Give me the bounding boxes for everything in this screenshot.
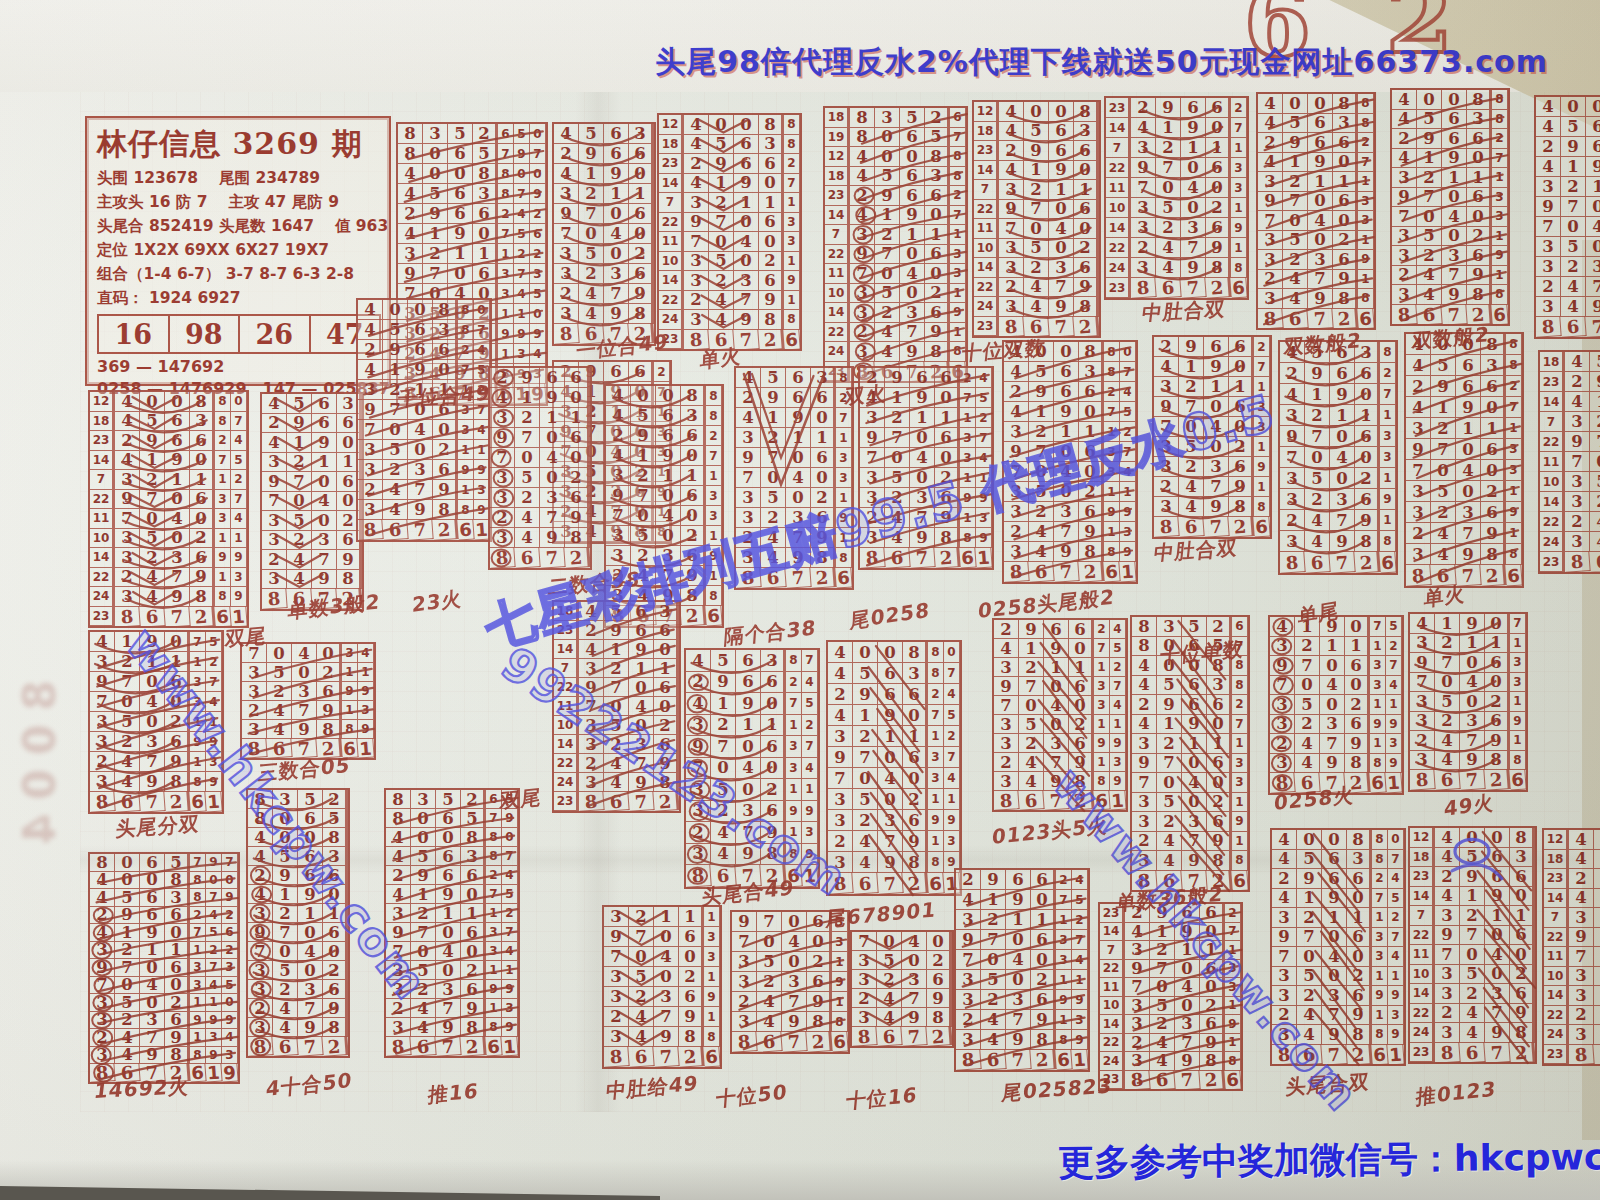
extra-cell: 7 [231,490,247,510]
extra-cell: 3 [215,490,231,510]
digit-cell: 0 [317,644,342,663]
digit-cell: 9 [448,224,473,244]
digit-cell: 4 [383,480,408,500]
digit-cell: 9 [515,368,540,388]
digit-cell: 2 [994,753,1019,772]
digit-cell: 6 [1229,457,1254,477]
extra-cell: 6 [927,872,944,894]
digit-cell: 3 [490,408,515,428]
number-grid: 4008804563872966244190753211129706377040… [356,298,492,542]
info-footer-1: 369 — 147692 [97,357,381,376]
grid-row: 14419075 [90,451,247,471]
digit-cell: 3 [262,570,287,590]
grid-caption: 双尾 [224,622,268,653]
digit-cell: 2 [1019,734,1044,753]
extra-cell: 9 [1120,542,1136,562]
number-grid: 4008456329664190321197067040350232362479… [1534,95,1600,339]
grid-row: 732111 [1106,138,1247,158]
grid-row: 3211122 [398,244,546,264]
digit-cell: 0 [786,448,811,468]
extra-cell: 9 [944,810,960,831]
extra-cell: 8 [1506,334,1522,355]
digit-cell: 4 [386,847,411,866]
extra-cell: 2 [1386,637,1402,657]
digit-cell: 2 [757,972,782,992]
digit-cell: 2 [1019,658,1044,677]
digit-cell: 3 [681,406,706,426]
digit-cell: 1 [910,408,935,428]
digit-cell: 5 [1305,468,1330,489]
digit-cell: 4 [1004,362,1029,382]
digit-cell: 5 [761,368,786,388]
digit-cell: 4 [358,320,383,340]
extra-cell: 7 [706,446,722,466]
digit-cell: 0 [900,245,925,265]
extra-cell: 1 [231,529,247,549]
digit-cell: 3 [684,310,709,330]
digit-cell: 7 [140,1029,165,1047]
digit-cell: 4 [1485,945,1510,965]
digit-cell: 4 [1392,90,1417,110]
digit-cell: 0 [925,206,950,226]
grid-row: 29662 [736,388,852,408]
digit-cell: 9 [656,446,681,466]
grid-caption: 49火 [1444,789,1495,823]
extra-cell: 3 [215,509,231,529]
extra-cell: 9 [215,548,231,568]
row-sum-label: 23 [1410,867,1435,887]
digit-cell: 3 [115,529,140,549]
digit-cell: 6 [878,684,903,705]
grid-row: 45638 [606,406,722,426]
row-sum-label: 11 [1540,452,1565,472]
grid-row: 3498 [554,304,654,324]
digit-cell: 0 [981,950,1006,970]
digit-cell: 9 [248,923,273,942]
grid-row: 45638 [1258,114,1374,134]
extra-cell: 8 [1380,531,1396,552]
row-sum-label: 14 [90,451,115,471]
extra-cell: 0 [222,994,238,1012]
digit-cell: 6 [1049,141,1074,161]
digit-cell: 0 [1355,384,1380,405]
grid-caption: 十位50 [715,1078,788,1113]
grid-row: 238672 [1544,1045,1600,1065]
digit-cell: 0 [1590,452,1600,472]
digit-cell: 2 [1305,489,1330,510]
digit-cell: 0 [408,440,433,460]
digit-cell: 3 [1044,734,1069,753]
digit-cell: 3 [1258,250,1283,270]
digit-cell: 6 [565,368,590,388]
digit-cell: 5 [1590,352,1600,372]
digit-cell: 5 [165,854,190,872]
digit-cell: 4 [115,752,140,772]
digit-cell: 6 [1510,984,1535,1004]
digit-cell: 0 [190,509,215,529]
grid-row: 9706373 [90,959,238,977]
row-sum-label: 10 [1106,198,1131,218]
grid-row: 144190 [1410,887,1535,907]
digit-cell: 2 [1435,1004,1460,1024]
extra-cell: 3 [1056,950,1072,970]
digit-cell: 1 [878,726,903,747]
extra-cell: 1 [357,738,374,758]
digit-cell: 3 [1004,542,1029,562]
digit-cell: 4 [115,1029,140,1047]
digit-cell: 8 [1333,289,1358,309]
digit-cell: 3 [604,987,629,1007]
grid-row: 32111 [736,428,852,448]
grid-row: 238672 [1410,1043,1535,1063]
extra-cell: 2 [222,907,238,925]
grid-row: 867261 [956,1050,1088,1070]
digit-cell: 3 [1435,1023,1460,1043]
digit-cell: 0 [631,386,656,406]
grid-row: 296624 [1004,382,1136,402]
grid-row: 1170403 [825,264,966,284]
extra-cell: 7 [498,144,514,164]
row-sum-label: 14 [1544,986,1569,1006]
digit-cell: 9 [878,852,903,873]
grid-row: 32369 [1406,502,1522,523]
digit-cell: 9 [1406,439,1431,460]
grid-row: 400880 [1272,830,1404,850]
digit-cell: 3 [811,368,836,388]
extra-cell: 2 [1492,129,1508,149]
grid-row: 2434988 [825,342,966,362]
extra-cell: 9 [206,1047,222,1065]
digit-cell: 9 [433,480,458,500]
grid-row: 2224791 [1106,238,1247,258]
digit-cell: 4 [1272,830,1297,850]
extra-cell: 1 [832,992,848,1012]
digit-cell: 1 [1156,118,1181,138]
digit-cell: 5 [287,394,312,414]
extra-cell: 7 [1510,614,1526,634]
digit-cell: 7 [604,947,629,967]
extra-cell: 1 [975,547,992,568]
digit-cell: 2 [423,244,448,264]
digit-cell: 1 [1594,889,1600,909]
digit-cell: 3 [115,548,140,568]
digit-cell: 3 [1435,906,1460,926]
extra-cell: 8 [190,772,206,792]
digit-cell: 1 [473,244,498,264]
digit-cell: 4 [1435,828,1460,848]
digit-cell: 2 [1406,523,1431,544]
digit-cell: 6 [1467,129,1492,149]
digit-cell: 2 [761,779,786,801]
extra-cell: 2 [1056,870,1072,890]
digit-cell: 0 [681,506,706,526]
grid-row: 34988 [604,1027,720,1047]
grid-row: 9706 [1536,197,1600,217]
digit-cell: 9 [1431,376,1456,397]
digit-cell: 3 [411,790,436,809]
wechat-contact-note: 更多参考中奖加微信号：hkcpwcn [1058,1133,1600,1188]
digit-cell: 5 [436,790,461,809]
digit-cell: 3 [1536,297,1561,317]
extra-cell: 8 [1231,258,1247,278]
digit-cell: 6 [165,959,190,977]
extra-cell: 7 [502,847,518,866]
digit-cell: 2 [1280,363,1305,384]
digit-cell: 3 [604,907,629,927]
digit-cell: 9 [1536,197,1561,217]
digit-cell: 3 [732,1012,757,1032]
digit-cell: 3 [248,1018,273,1037]
digit-cell: 9 [317,701,342,720]
digit-cell: 3 [1125,941,1150,960]
digit-cell: 2 [1347,967,1372,987]
extra-cell: 1 [1358,172,1374,192]
row-sum-label: 23 [659,154,684,174]
digit-cell: 4 [902,932,927,951]
digit-cell: 6 [433,460,458,480]
digit-cell: 4 [248,847,273,866]
grid-row: 806579 [386,809,518,828]
digit-cell: 1 [436,904,461,923]
extra-cell: 2 [190,907,206,925]
extra-cell: 4 [530,344,546,364]
extra-cell: 0 [530,124,546,144]
digit-cell: 1 [1157,715,1182,735]
digit-cell: 6 [565,488,590,508]
digit-cell: 6 [1434,769,1460,790]
grid-row: 70403 [1258,211,1374,231]
extra-cell: 7 [1358,153,1374,173]
digit-cell: 0 [900,147,925,167]
extra-cell: 9 [1232,812,1248,832]
digit-cell: 4 [1258,114,1283,134]
extra-cell: 6 [189,1063,206,1082]
digit-cell: 0 [900,284,925,304]
digit-cell: 2 [90,907,115,925]
grid-row: 97063 [1410,653,1526,673]
digit-cell: 3 [1392,227,1417,247]
digit-cell: 1 [411,885,436,904]
digit-cell: 7 [734,291,759,311]
digit-cell: 0 [1435,673,1460,693]
extra-cell: 8 [1104,342,1120,362]
digit-cell: 4 [312,492,337,512]
digit-cell: 2 [1031,970,1056,990]
digit-cell: 3 [1565,532,1590,552]
digit-cell: 5 [1024,239,1049,259]
digit-cell: 7 [273,923,298,942]
digit-cell: 8 [1124,1070,1150,1090]
grid-row: 970637 [686,736,818,758]
digit-cell: 8 [1333,94,1358,114]
digit-cell: 9 [1031,1010,1056,1030]
extra-cell: 7 [514,264,530,284]
digit-cell: 7 [1019,677,1044,696]
row-sum-label: 18 [1544,850,1569,870]
digit-cell: 4 [248,885,273,904]
number-grid: 704035023236247934988672 [850,930,954,1048]
digit-cell: 8 [629,304,654,324]
digit-cell: 6 [1054,382,1079,402]
grid-row: 12400880 [90,392,247,412]
digit-cell: 8 [1481,544,1506,565]
digit-cell: 1 [1308,172,1333,192]
digit-cell: 9 [1175,1052,1200,1071]
digit-cell: 7 [1005,1049,1031,1071]
digit-cell: 8 [1434,1042,1460,1063]
digit-cell: 5 [1295,695,1320,715]
digit-cell: 7 [1460,731,1485,751]
digit-cell: 3 [1181,218,1206,238]
digit-cell: 0 [565,448,590,468]
grid-row: 32369 [1132,812,1248,832]
digit-cell: 9 [165,1029,190,1047]
digit-cell: 0 [1305,447,1330,468]
digit-cell: 4 [736,758,761,780]
digit-cell: 2 [515,488,540,508]
digit-cell: 0 [629,164,654,184]
digit-cell: 4 [115,392,140,412]
grid-row: 3498 [490,528,590,548]
grid-row: 247913 [1270,734,1402,754]
grid-row: 9706 [554,204,654,224]
digit-cell: 3 [999,297,1024,317]
extra-cell: 6 [959,547,976,568]
digit-cell: 2 [1536,277,1561,297]
digit-cell: 3 [1510,848,1535,868]
extra-cell: 8 [486,847,502,866]
digit-cell: 2 [554,144,579,164]
digit-cell: 4 [1431,523,1456,544]
digit-cell: 2 [90,1029,115,1047]
digit-cell: 3 [1569,986,1594,1006]
digit-cell: 3 [850,303,875,323]
digit-cell: 5 [925,128,950,148]
digit-cell: 0 [629,678,654,697]
extra-cell: 5 [231,451,247,471]
digit-cell: 0 [1345,617,1370,637]
digit-cell: 0 [761,758,786,780]
extra-cell: 7 [802,650,818,672]
digit-cell: 0 [190,451,215,471]
extra-cell: 1 [190,994,206,1012]
digit-cell: 2 [1431,502,1456,523]
grid-row: 117040 [974,219,1099,239]
digit-cell: 2 [473,124,498,144]
digit-cell: 0 [1049,200,1074,220]
digit-cell: 8 [1200,1052,1225,1071]
extra-cell: 9 [1110,772,1126,791]
digit-cell: 6 [604,124,629,144]
grid-row: 321112 [386,904,518,923]
digit-cell: 6 [1456,355,1481,376]
grid-row: 32369 [604,987,720,1007]
grid-row: 3502 [1536,237,1600,257]
digit-cell: 7 [292,701,317,720]
digit-cell: 7 [732,932,757,952]
grid-row: 34988 [1392,285,1508,305]
digit-cell: 9 [910,388,935,408]
grid-row: 23867261 [90,607,247,627]
grid-row: 4008800 [90,872,238,890]
extra-cell: 7 [1492,149,1508,169]
extra-cell: 1 [1094,715,1110,734]
digit-cell: 7 [1182,832,1207,852]
digit-cell: 3 [90,772,115,792]
digit-cell: 8 [565,528,590,548]
row-sum-label: 24 [659,310,684,330]
grid-row: 1035021 [1106,198,1247,218]
digit-cell: 4 [1460,1004,1485,1024]
extra-cell: 7 [1094,639,1110,658]
extra-cell: 1 [498,344,514,364]
grid-row: 35021 [1258,231,1374,251]
extra-cell: 7 [190,632,206,652]
digit-cell: 4 [1569,850,1594,870]
digit-cell: 0 [292,663,317,682]
digit-cell: 4 [115,412,140,432]
extra-cell: 8 [1254,497,1270,517]
extra-cell: 3 [832,932,848,952]
digit-cell: 8 [433,300,458,320]
grid-row: 350211 [956,970,1088,990]
digit-cell: 4 [90,872,115,890]
digit-cell: 9 [140,924,165,942]
digit-cell: 4 [1044,696,1069,715]
digit-cell: 2 [242,701,267,720]
extra-cell: 1 [1510,634,1526,654]
digit-cell: 3 [1049,258,1074,278]
grid-row: 1432369 [1106,218,1247,238]
digit-cell: 9 [358,400,383,420]
digit-cell: 9 [1308,153,1333,173]
digit-cell: 0 [423,144,448,164]
digit-cell: 3 [956,1030,981,1050]
digit-cell: 0 [1182,754,1207,774]
extra-cell: 1 [786,715,802,737]
grid-row: 2297063 [825,245,966,265]
digit-cell: 0 [1297,830,1322,850]
grid-row: 349889 [242,720,374,739]
row-sum-label: 22 [659,291,684,311]
number-grid: 2329662144190773211122970631170403103502… [1104,96,1249,300]
digit-cell: 6 [927,970,952,989]
digit-cell: 4 [490,388,515,408]
extra-cell: 8 [1232,851,1248,871]
digit-cell: 6 [312,414,337,434]
extra-cell: 1 [784,193,800,213]
extra-cell: 1 [1370,695,1386,715]
digit-cell: 3 [1586,257,1600,277]
digit-cell: 4 [734,232,759,252]
digit-cell: 0 [1594,830,1600,850]
digit-cell: 4 [554,164,579,184]
grid-row: 2966 [262,414,362,434]
row-sum-label: 7 [974,180,999,200]
grid-row: 29662 [1132,695,1248,715]
grid-row: 296624 [686,672,818,694]
digit-cell: 7 [956,950,981,970]
grid-row: 3498 [262,570,362,590]
digit-cell: 4 [877,989,902,1008]
digit-cell: 2 [709,193,734,213]
grid-caption: 尾025823 [1001,1072,1114,1107]
grid-row: 70403 [1392,207,1508,227]
extra-cell: 1 [704,1007,720,1027]
digit-cell: 8 [1347,1025,1372,1045]
digit-cell: 2 [806,1031,832,1053]
grid-row: 1883526 [825,108,966,128]
